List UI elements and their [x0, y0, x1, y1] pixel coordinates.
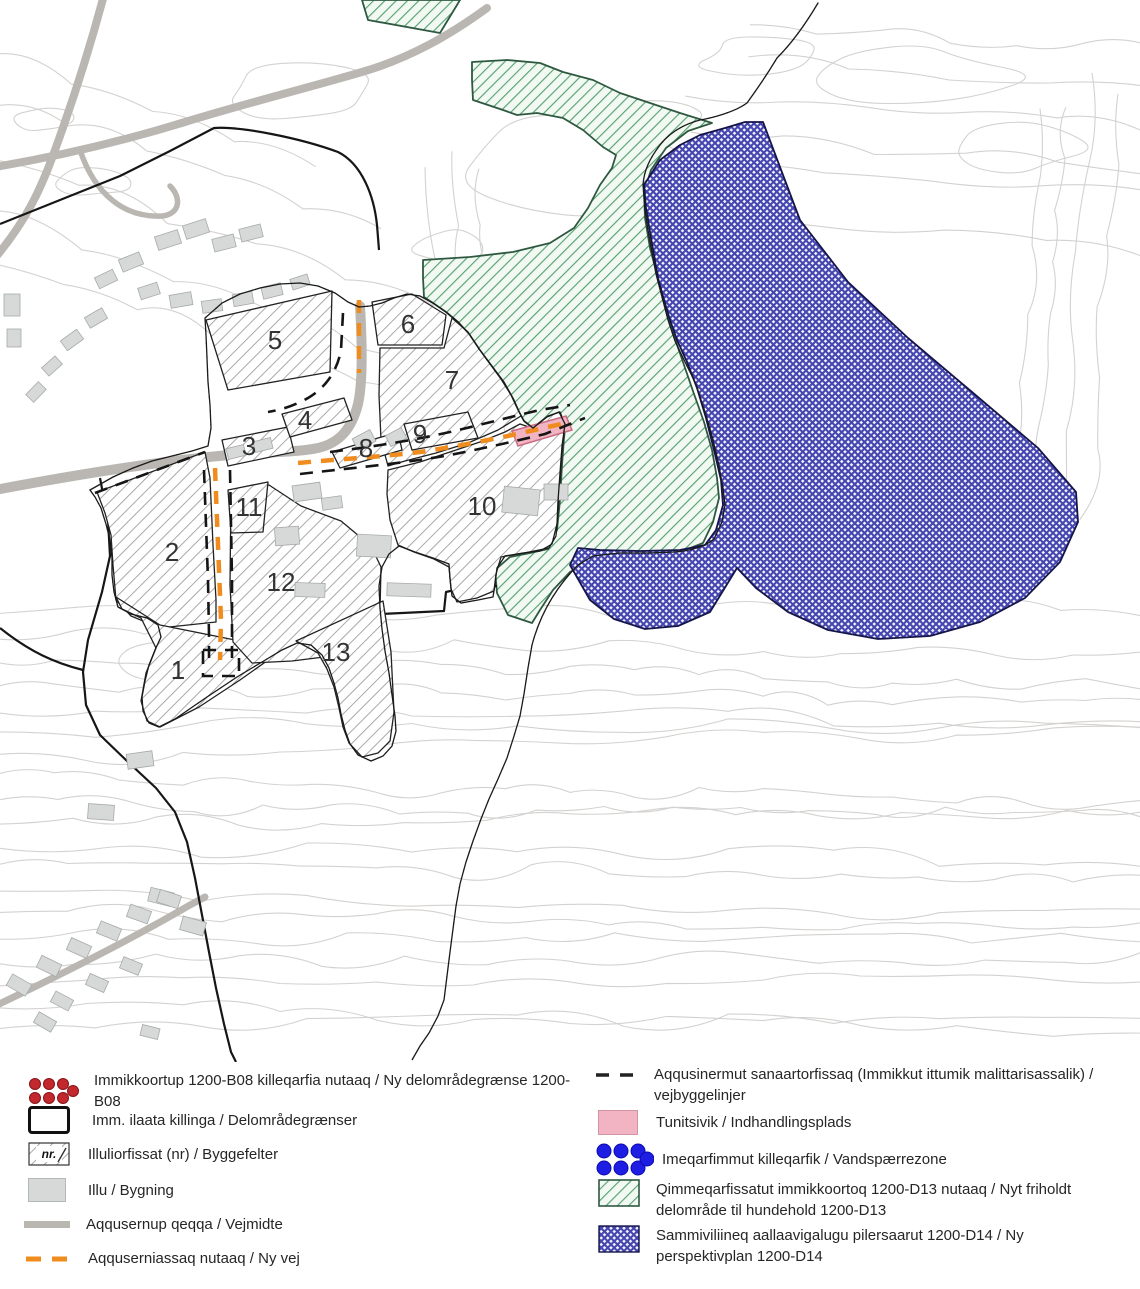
legend-label: Sammiviliineq aallaavigalugu pilersaarut… — [656, 1225, 1106, 1267]
d13-area-top-left — [362, 0, 460, 33]
building — [182, 219, 209, 240]
area-label-12: 12 — [267, 567, 296, 597]
legend-item-vejmidte: Aqqusernup qeqqa / Vejmidte — [24, 1214, 566, 1235]
building — [169, 292, 193, 309]
building — [26, 382, 46, 403]
legend-label: Illu / Bygning — [88, 1180, 568, 1201]
building — [96, 921, 121, 941]
area-label-5: 5 — [268, 325, 282, 355]
building — [94, 269, 117, 289]
building — [119, 957, 142, 976]
building — [274, 526, 299, 546]
legend-item-tunitsivik: Tunitsivik / Indhandlingsplads — [598, 1110, 1116, 1135]
building — [544, 484, 568, 500]
building — [502, 486, 541, 516]
legend-label: Qimmeqarfissatut immikkoortoq 1200-D13 n… — [656, 1179, 1106, 1221]
legend-item-d14: Sammiviliineq aallaavigalugu pilersaarut… — [598, 1225, 1106, 1267]
blue-dots-icon — [592, 1140, 654, 1178]
building — [4, 294, 20, 316]
green-hatched-box-icon — [598, 1179, 640, 1207]
area-label-3: 3 — [242, 431, 256, 461]
building — [295, 582, 325, 597]
black-dashed-line-icon — [596, 1070, 640, 1080]
building — [321, 496, 342, 511]
building — [212, 234, 236, 252]
building — [84, 308, 107, 328]
area-label-11: 11 — [236, 492, 263, 522]
area-label-10: 10 — [468, 491, 497, 521]
gray-box-icon — [28, 1178, 66, 1202]
byggefelt-area-2 — [97, 452, 216, 628]
legend-label: Imm. ilaata killinga / Delområdegrænser — [92, 1110, 572, 1131]
hatched-nr-box-icon: nr. — [28, 1142, 70, 1166]
svg-text:nr.: nr. — [42, 1147, 57, 1161]
legend-label: Illuliorfissat (nr) / Byggefelter — [88, 1144, 568, 1165]
building — [118, 252, 143, 272]
building — [154, 230, 181, 251]
legend-label: Aqqusinermut sanaartorfissaq (Immikkut i… — [654, 1064, 1124, 1106]
orange-dashed-line-icon — [24, 1254, 76, 1264]
area-label-13: 13 — [322, 637, 351, 667]
legend-item-delomraade: Imm. ilaata killinga / Delområdegrænser — [28, 1106, 572, 1134]
legend-label: Tunitsivik / Indhandlingsplads — [656, 1112, 1116, 1133]
building — [42, 356, 63, 376]
legend-item-byggefelter: nr. Illuliorfissat (nr) / Byggefelter — [28, 1142, 568, 1166]
area-label-9: 9 — [413, 419, 427, 449]
building — [157, 889, 182, 908]
legend-item-vandspaerrezone: Imeqarfimmut killeqarfik / Vandspærrezon… — [592, 1140, 1122, 1178]
building — [126, 904, 151, 924]
building — [138, 282, 161, 300]
legend-item-d13: Qimmeqarfissatut immikkoortoq 1200-D13 n… — [598, 1179, 1106, 1221]
legend-item-ny-vej: Aqquserniassaq nutaaq / Ny vej — [24, 1248, 568, 1269]
area-label-7: 7 — [445, 365, 459, 395]
legend-item-vejbyggelinjer: Aqqusinermut sanaartorfissaq (Immikkut i… — [596, 1064, 1124, 1106]
area-label-2: 2 — [165, 537, 179, 567]
building — [356, 534, 391, 558]
building — [85, 973, 108, 992]
building — [126, 751, 154, 769]
map-svg: 1 2 3 4 5 6 7 8 9 10 11 12 13 — [0, 0, 1140, 1062]
plan-map: 1 2 3 4 5 6 7 8 9 10 11 12 13 — [0, 0, 1140, 1062]
building — [290, 274, 311, 290]
map-legend: Immikkoortup 1200-B08 killeqarfia nutaaq… — [0, 1062, 1140, 1289]
building — [140, 1024, 160, 1039]
area-label-1: 1 — [171, 655, 185, 685]
legend-label: Aqquserniassaq nutaaq / Ny vej — [88, 1248, 568, 1269]
building — [33, 1012, 56, 1032]
red-dots-icon — [24, 1075, 80, 1107]
building — [66, 938, 91, 959]
blue-crosshatched-box-icon — [598, 1225, 640, 1253]
building — [88, 804, 115, 821]
building — [36, 955, 61, 976]
area-label-8: 8 — [359, 433, 373, 463]
black-outline-box-icon — [28, 1106, 70, 1134]
building — [292, 482, 322, 502]
thick-gray-line-icon — [24, 1221, 70, 1228]
pink-box-icon — [598, 1110, 638, 1135]
legend-label: Aqqusernup qeqqa / Vejmidte — [86, 1214, 566, 1235]
building — [7, 329, 21, 347]
plan-map-page: 1 2 3 4 5 6 7 8 9 10 11 12 13 — [0, 0, 1140, 1289]
legend-label: Imeqarfimmut killeqarfik / Vandspærrezon… — [662, 1149, 1122, 1170]
building — [239, 224, 263, 242]
legend-item-bygning: Illu / Bygning — [28, 1178, 568, 1202]
area-label-6: 6 — [401, 309, 415, 339]
building — [60, 329, 83, 350]
area-label-4: 4 — [298, 405, 312, 435]
building — [387, 583, 431, 598]
